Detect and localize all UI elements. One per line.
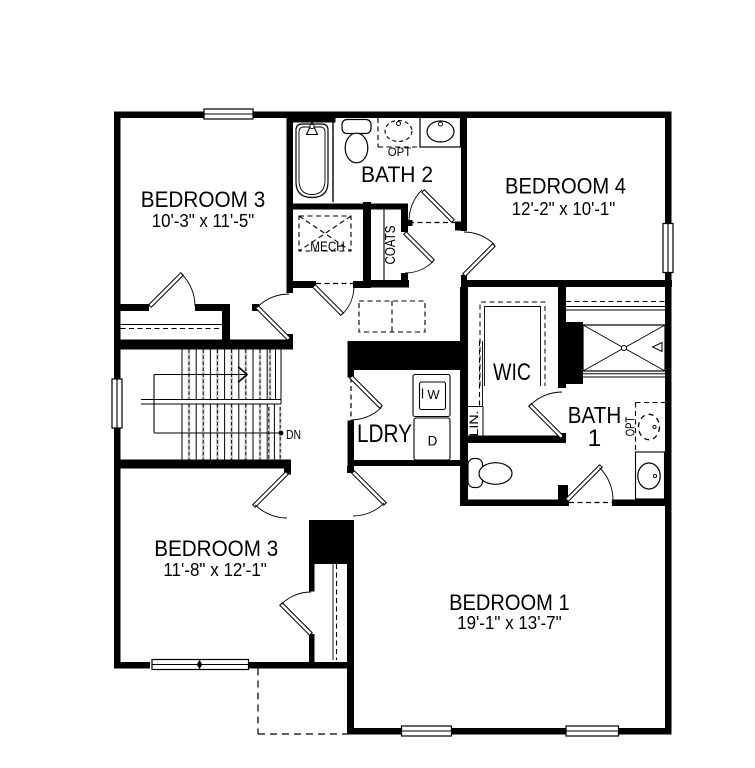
svg-text:WIC: WIC — [493, 359, 531, 386]
svg-text:BEDROOM 4: BEDROOM 4 — [505, 174, 626, 199]
svg-text:W: W — [427, 387, 440, 402]
svg-text:LDRY: LDRY — [357, 420, 412, 448]
svg-text:10'-3" x 11'-5": 10'-3" x 11'-5" — [152, 211, 255, 231]
svg-text:D: D — [428, 434, 438, 449]
svg-text:1: 1 — [588, 425, 602, 452]
svg-text:DN: DN — [286, 427, 301, 442]
svg-text:11'-8" x 12'-1": 11'-8" x 12'-1" — [163, 560, 267, 580]
svg-text:19'-1" x 13'-7": 19'-1" x 13'-7" — [457, 613, 562, 633]
svg-text:MECH: MECH — [310, 239, 345, 254]
svg-text:BATH 2: BATH 2 — [361, 162, 433, 187]
svg-text:LIN.: LIN. — [467, 411, 481, 437]
svg-text:COATS: COATS — [382, 226, 399, 265]
svg-text:OPT: OPT — [623, 417, 638, 437]
svg-text:BEDROOM 3: BEDROOM 3 — [154, 536, 278, 561]
svg-text:BEDROOM 3: BEDROOM 3 — [141, 187, 266, 212]
svg-text:BEDROOM 1: BEDROOM 1 — [449, 590, 570, 615]
svg-text:12'-2" x 10'-1": 12'-2" x 10'-1" — [512, 199, 616, 219]
svg-text:OPT: OPT — [388, 145, 412, 159]
